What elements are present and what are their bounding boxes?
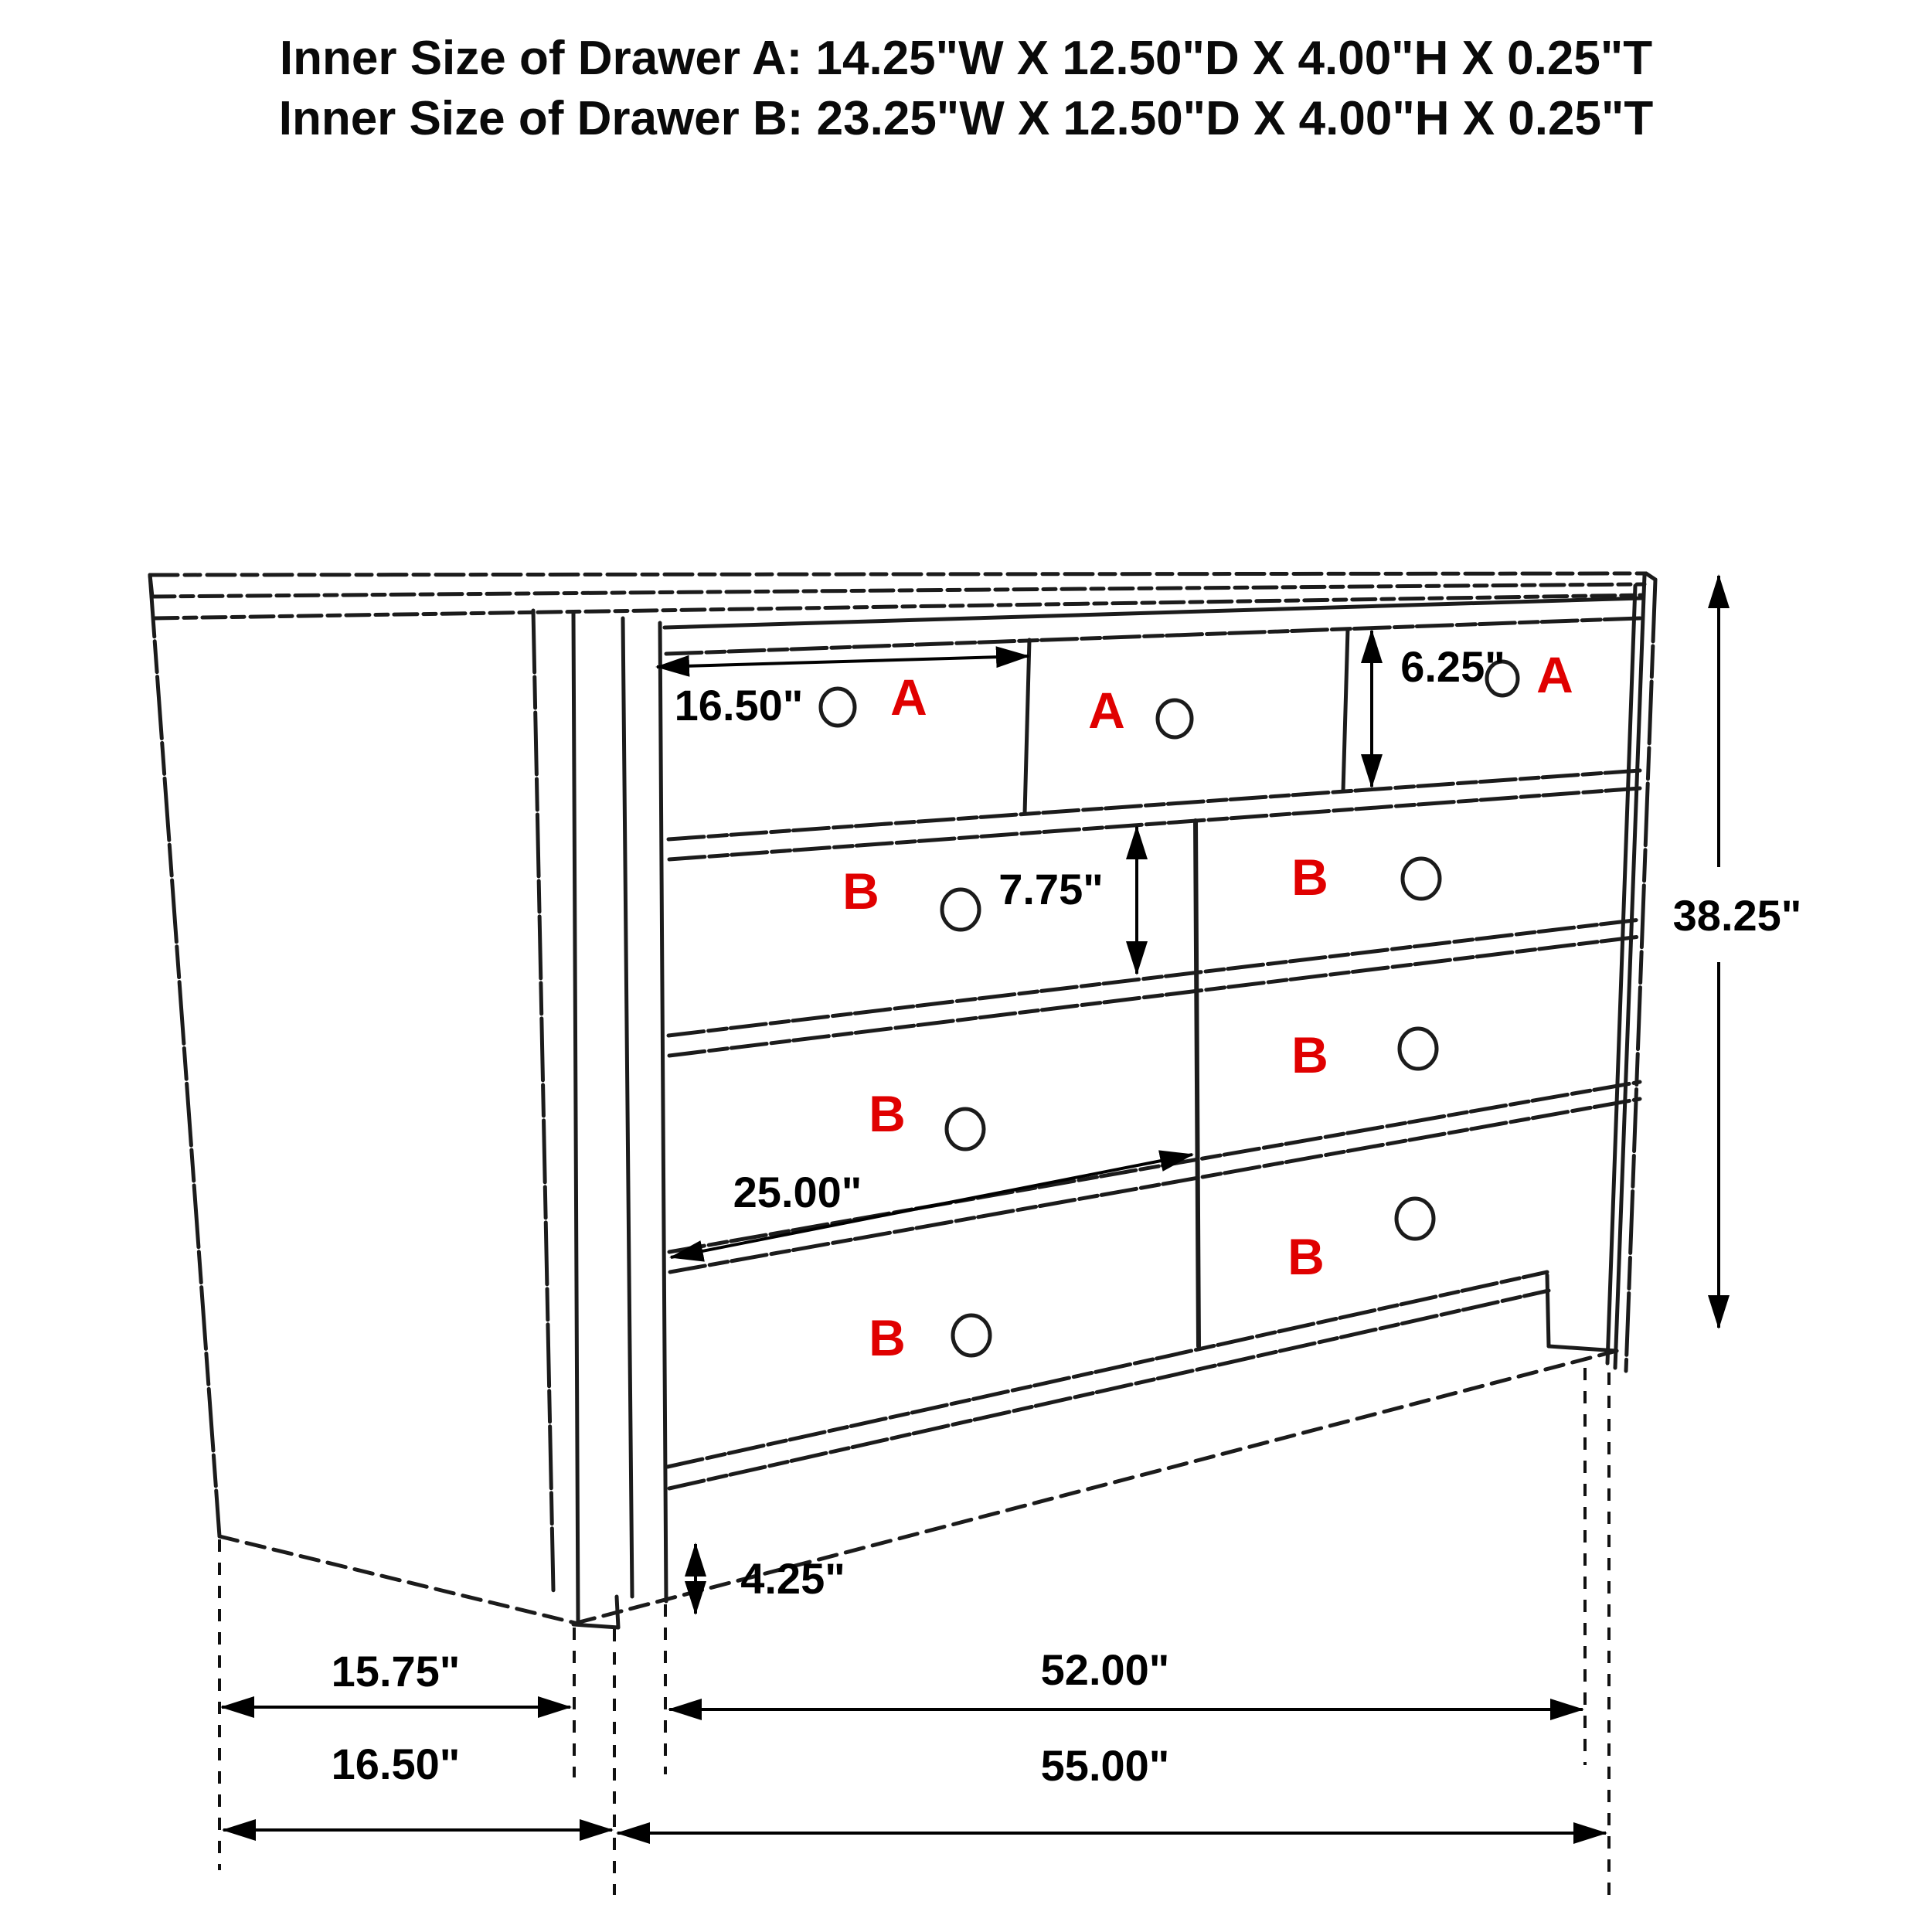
front-corner-post-line-1 xyxy=(533,611,553,1590)
rail-1-upper xyxy=(668,920,1640,1036)
center-divider xyxy=(1196,821,1199,1346)
rail-3-lower xyxy=(669,1291,1549,1488)
drawer-label-b: B xyxy=(869,1309,906,1366)
dim-label-base-height: 4.25" xyxy=(740,1554,845,1603)
rail-2-upper xyxy=(669,1082,1640,1252)
drawer-a-divider-2 xyxy=(1343,629,1348,791)
top-back-edge xyxy=(150,573,1646,575)
dim-label-side-depth-overall: 16.50" xyxy=(332,1740,461,1788)
drawer-a-divider-1 xyxy=(1025,640,1029,814)
drawer-knob-icon xyxy=(942,889,979,930)
dresser-drawing: A A A B B B B B B xyxy=(150,573,1655,1628)
drawer-label-b: B xyxy=(1287,1228,1325,1285)
drawer-knob-icon xyxy=(953,1315,990,1355)
dim-label-overall-height: 38.25" xyxy=(1673,891,1802,940)
dim-label-drawer-a-width: 16.50" xyxy=(675,681,804,730)
drawer-knob-icon xyxy=(821,689,855,726)
drawer-knob-icon xyxy=(947,1109,984,1149)
rail-a-upper xyxy=(668,770,1640,839)
drawer-label-b: B xyxy=(1291,849,1328,906)
dresser-diagram: A A A B B B B B B 16.50" 6.25" xyxy=(0,0,1932,1932)
drawer-label-b: B xyxy=(842,862,879,920)
dim-label-side-depth-top: 15.75" xyxy=(332,1647,461,1696)
drawer-knob-icon xyxy=(1396,1199,1434,1239)
dim-label-front-width-overall: 55.00" xyxy=(1041,1741,1170,1790)
front-stile-line-1 xyxy=(623,618,632,1597)
dim-arrow-drawer-a-width xyxy=(657,656,1029,667)
dim-label-front-width-top: 52.00" xyxy=(1041,1645,1170,1694)
drawer-label-a: A xyxy=(1536,646,1573,703)
top-front-edge xyxy=(151,584,1645,597)
drawer-label-b: B xyxy=(869,1085,906,1142)
front-stile-line-2 xyxy=(660,623,666,1601)
rail-3-upper xyxy=(668,1272,1547,1467)
dim-label-drawer-b-width: 25.00" xyxy=(733,1168,862,1216)
right-foot-left-edge xyxy=(1547,1275,1549,1346)
front-corner-post-line-2 xyxy=(573,614,578,1621)
rail-1-lower xyxy=(669,937,1640,1056)
left-foot-right-edge xyxy=(617,1597,618,1628)
dresser-dimension-diagram-page: Inner Size of Drawer A: 14.25"W X 12.50"… xyxy=(0,0,1932,1932)
dim-label-drawer-b-height: 7.75" xyxy=(998,865,1104,913)
side-panel-left-edge xyxy=(150,575,219,1536)
left-foot-bottom-edge xyxy=(573,1624,618,1628)
dim-label-drawer-a-height: 6.25" xyxy=(1400,642,1505,691)
drawer-knob-icon xyxy=(1158,700,1192,737)
drawer-label-a: A xyxy=(890,668,927,726)
side-panel-bottom-edge xyxy=(219,1536,575,1623)
drawer-label-a: A xyxy=(1088,682,1125,739)
drawer-knob-icon xyxy=(1403,859,1440,899)
rail-a-lower xyxy=(669,788,1640,859)
drawer-label-b: B xyxy=(1291,1026,1328,1083)
drawer-knob-icon xyxy=(1400,1029,1437,1069)
